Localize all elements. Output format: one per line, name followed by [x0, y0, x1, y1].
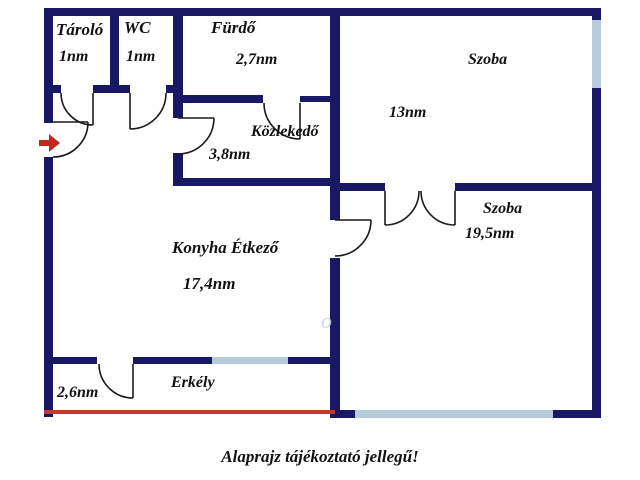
floorplan-page: { "floorplan": { "caption": "Alaprajz tá…	[0, 0, 640, 480]
room-area-szoba-felso: 13nm	[389, 105, 426, 121]
door-entrance-icon	[53, 122, 88, 157]
entry-arrow-icon	[39, 134, 60, 152]
room-area-furdo: 2,7nm	[236, 52, 277, 68]
room-area-konyha: 17,4nm	[183, 275, 235, 292]
room-area-erkely: 2,6nm	[57, 385, 98, 401]
room-label-erkely: Erkély	[171, 375, 215, 391]
watermark: o	[321, 308, 332, 334]
door-double-right-icon	[421, 191, 455, 225]
room-area-kozlekedo: 3,8nm	[209, 147, 250, 163]
caption-disclaimer: Alaprajz tájékoztató jellegű!	[0, 447, 640, 467]
door-double-left-icon	[385, 191, 419, 225]
room-area-tarolo: 1nm	[59, 49, 88, 65]
room-label-kozlekedo: Közlekedő	[251, 124, 319, 140]
windows	[212, 20, 601, 418]
window-balcony-icon	[212, 357, 288, 364]
door-konyha-szoba-icon	[335, 220, 371, 256]
door-erkely-icon	[99, 364, 133, 398]
room-label-konyha: Konyha Étkező	[172, 239, 278, 256]
floorplan-drawing	[0, 0, 640, 480]
room-label-tarolo: Tároló	[56, 21, 103, 38]
door-tarolo-icon	[61, 93, 93, 125]
room-label-furdo: Fürdő	[211, 19, 255, 36]
room-label-wc: WC	[124, 19, 150, 36]
room-label-szoba-also: Szoba	[483, 201, 522, 217]
window-right-icon	[592, 20, 601, 88]
door-wc-icon	[130, 93, 166, 129]
room-area-szoba-also: 19,5nm	[465, 226, 514, 242]
room-label-szoba-felso: Szoba	[468, 52, 507, 68]
window-bottom-icon	[355, 410, 553, 418]
balcony-edge-line	[44, 410, 335, 414]
room-area-wc: 1nm	[126, 49, 155, 65]
